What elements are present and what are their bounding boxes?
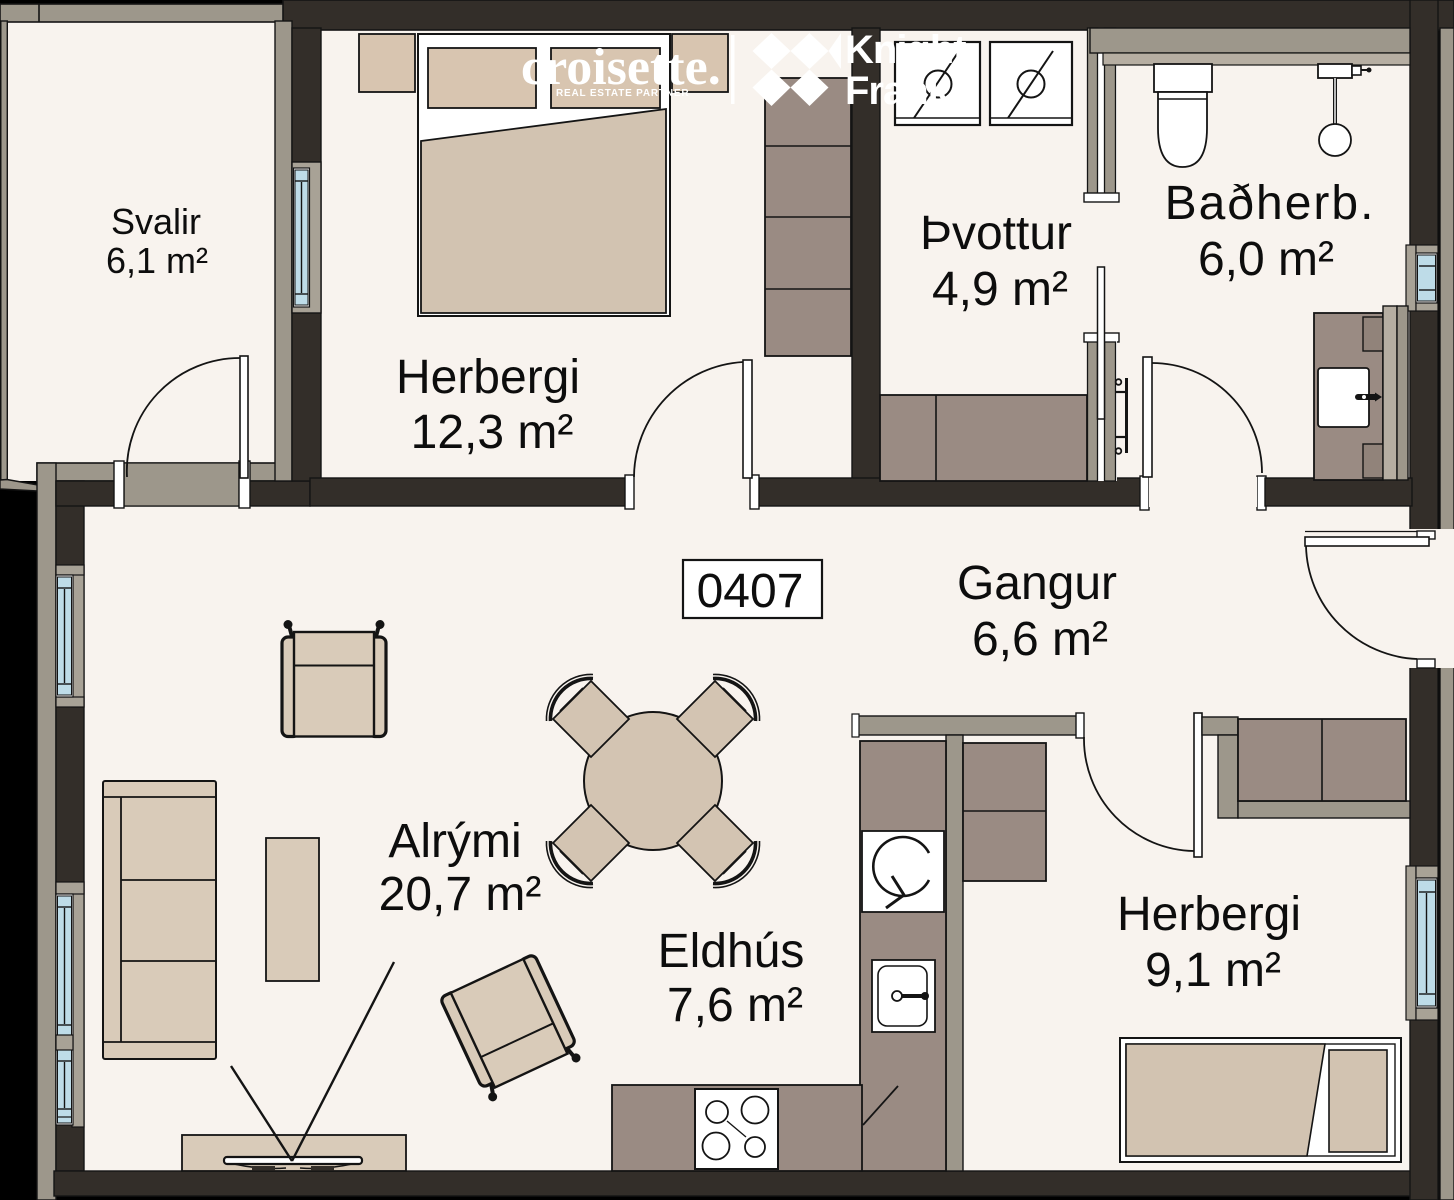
- svg-text:Þvottur: Þvottur: [920, 207, 1072, 260]
- svg-text:Knight: Knight: [845, 28, 966, 72]
- svg-text:Svalir: Svalir: [111, 201, 201, 242]
- svg-text:Herbergi: Herbergi: [396, 351, 580, 404]
- svg-text:REAL ESTATE PARTNER: REAL ESTATE PARTNER: [556, 88, 689, 99]
- svg-text:6,1 m²: 6,1 m²: [106, 240, 208, 281]
- svg-text:7,6 m²: 7,6 m²: [667, 979, 803, 1032]
- svg-text:Frank: Frank: [845, 69, 951, 113]
- svg-text:Baðherb.: Baðherb.: [1165, 177, 1376, 230]
- svg-text:4,9 m²: 4,9 m²: [932, 263, 1068, 316]
- svg-text:6,0 m²: 6,0 m²: [1198, 233, 1334, 286]
- svg-text:Gangur: Gangur: [957, 557, 1117, 610]
- svg-text:0407: 0407: [697, 565, 804, 618]
- svg-text:6,6 m²: 6,6 m²: [972, 613, 1108, 666]
- svg-text:20,7 m²: 20,7 m²: [379, 868, 542, 921]
- svg-text:Alrými: Alrými: [388, 815, 521, 868]
- svg-text:12,3 m²: 12,3 m²: [411, 406, 574, 459]
- svg-text:Herbergi: Herbergi: [1117, 888, 1301, 941]
- svg-text:Eldhús: Eldhús: [658, 925, 805, 978]
- svg-text:9,1 m²: 9,1 m²: [1145, 944, 1281, 997]
